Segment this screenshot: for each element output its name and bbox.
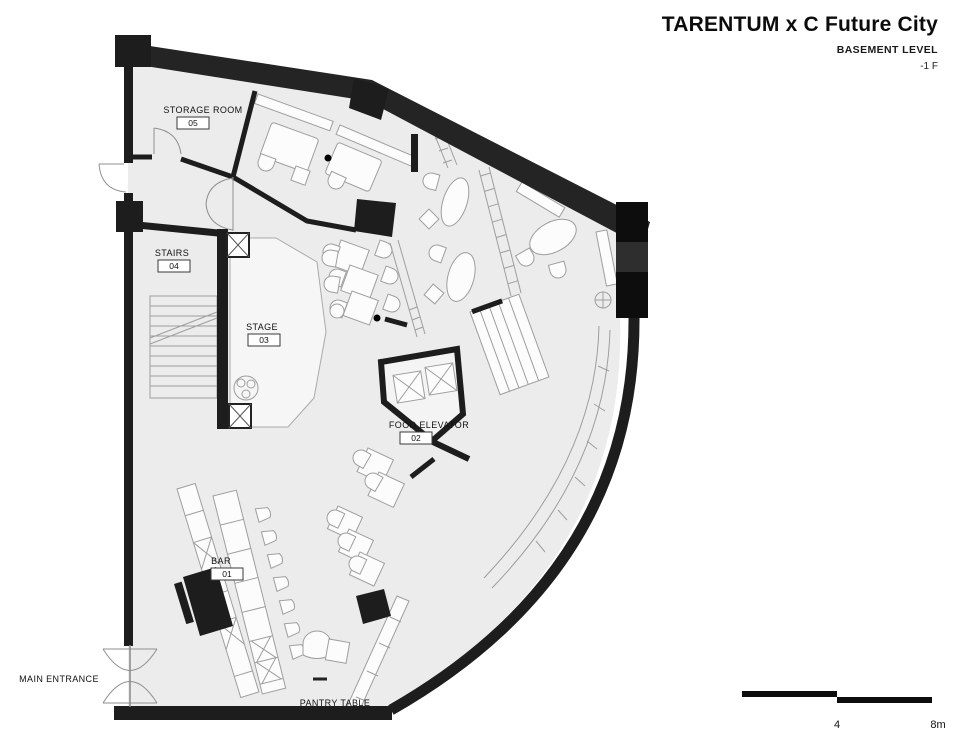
main-entrance-label: MAIN ENTRANCE xyxy=(19,674,99,684)
room-number: 02 xyxy=(411,433,421,443)
floor-plan-page: TARENTUM x C Future City BASEMENT LEVEL … xyxy=(0,0,960,749)
round-stool xyxy=(330,304,344,318)
column xyxy=(116,201,143,232)
room-number: 01 xyxy=(222,569,232,579)
scale-end-label: 8m xyxy=(930,719,945,731)
scale-bar: 4 8m xyxy=(742,691,946,731)
wall-bottom xyxy=(114,706,392,720)
column xyxy=(115,35,151,67)
column xyxy=(616,202,648,242)
elevator-shaft xyxy=(393,371,425,403)
column-xbox xyxy=(227,233,249,257)
column-dot xyxy=(374,315,381,322)
stairs-side-wall xyxy=(217,229,228,429)
room-name: STAIRS xyxy=(155,248,189,258)
column xyxy=(616,272,648,318)
pantry-table-label: PANTRY TABLE xyxy=(300,698,371,708)
column-dot xyxy=(325,155,332,162)
wall-connector xyxy=(616,240,648,276)
round-side-table xyxy=(595,292,611,308)
scale-mid-label: 4 xyxy=(834,719,840,731)
elevator-shaft xyxy=(425,363,457,395)
wall-left xyxy=(124,193,133,646)
room-name: STAGE xyxy=(246,322,278,332)
scale-segment-2 xyxy=(837,697,932,703)
stage-area xyxy=(230,238,326,427)
room-name: STORAGE ROOM xyxy=(163,105,242,115)
column-xbox xyxy=(229,404,251,428)
room-number: 05 xyxy=(188,118,198,128)
room-number: 03 xyxy=(259,335,269,345)
floor-plan-drawing: STORAGE ROOM 05 STAIRS 04 STAGE 03 FOOD … xyxy=(0,0,960,749)
room-name: BAR xyxy=(211,556,231,566)
room-label-stairs: STAIRS 04 xyxy=(155,248,190,272)
room-number: 04 xyxy=(169,261,179,271)
room-label-stage: STAGE 03 xyxy=(246,322,280,346)
partition-wall xyxy=(411,134,418,172)
room-name: FOOD ELEVATOR xyxy=(389,420,469,430)
scale-segment-1 xyxy=(742,691,837,697)
lounge-table xyxy=(325,639,349,663)
door-arc xyxy=(99,164,126,192)
column xyxy=(354,199,396,237)
